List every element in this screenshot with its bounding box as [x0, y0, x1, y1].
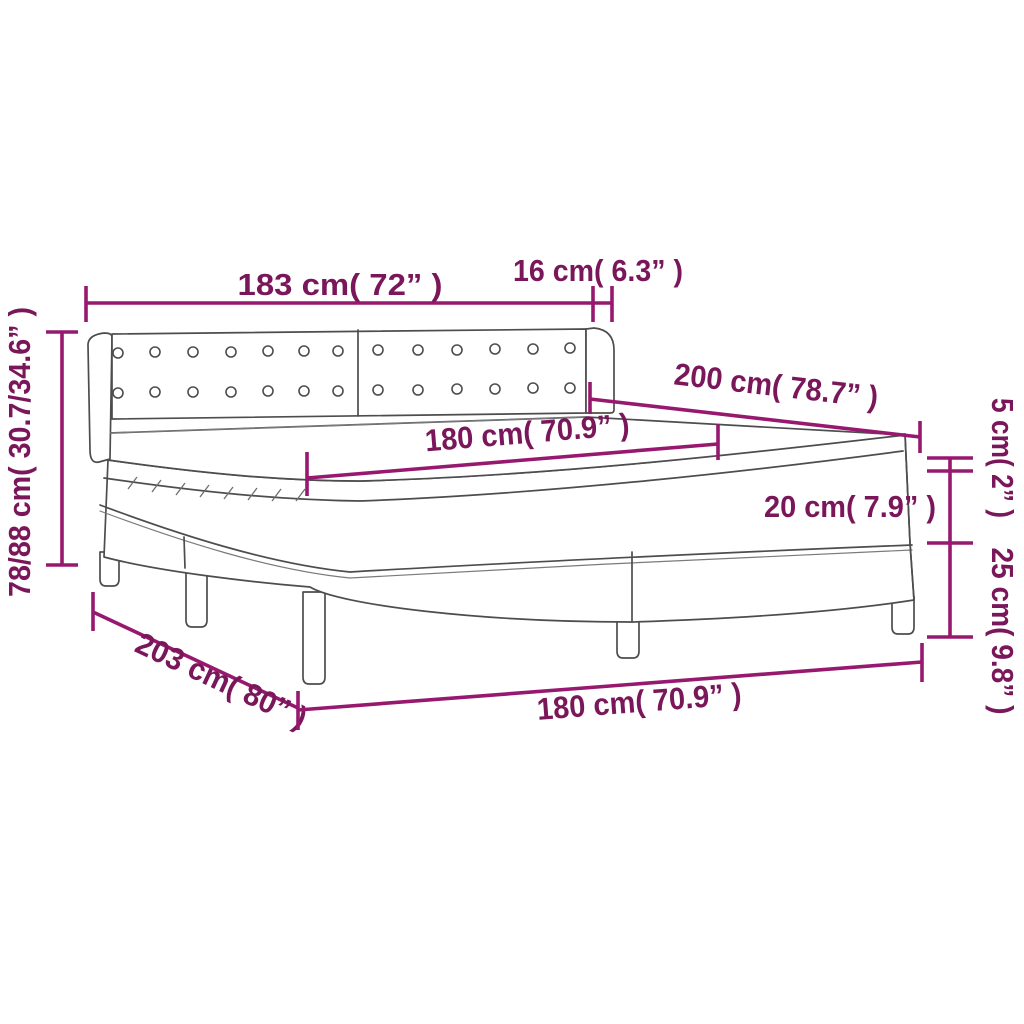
- dimension-label-bed-length: 200 cm( 78.7” ): [672, 356, 880, 414]
- button-icon: [150, 387, 160, 397]
- button-icon: [565, 343, 575, 353]
- button-icon: [490, 344, 500, 354]
- button-icon: [528, 344, 538, 354]
- dimension-label-headboard-width: 183 cm( 72” ): [238, 267, 443, 302]
- button-icon: [413, 345, 423, 355]
- button-icon: [263, 346, 273, 356]
- button-icon: [188, 387, 198, 397]
- button-icon: [113, 348, 123, 358]
- dim-headboard-wing-depth: 16 cm( 6.3” ): [513, 253, 683, 322]
- bed-leg: [303, 592, 325, 684]
- button-icon: [299, 386, 309, 396]
- dim-right-vertical: 5 cm( 2” ) 25 cm( 9.8” ): [927, 398, 1020, 715]
- button-icon: [299, 346, 309, 356]
- button-icon: [113, 388, 123, 398]
- button-icon: [226, 387, 236, 397]
- button-icon: [150, 347, 160, 357]
- headboard-panel: [112, 329, 586, 419]
- dimension-label-wing-depth: 16 cm( 6.3” ): [513, 253, 683, 288]
- button-icon: [333, 346, 343, 356]
- button-icon: [373, 345, 383, 355]
- dimension-label-topper-height: 5 cm( 2” ): [985, 398, 1020, 518]
- dimension-label-headboard-height: 78/88 cm( 30.7/34.6” ): [2, 307, 37, 597]
- dimension-label-base-width: 180 cm( 70.9” ): [536, 676, 743, 727]
- dim-base-width: 180 cm( 70.9” ): [298, 643, 922, 730]
- bed-dimension-diagram: 183 cm( 72” ) 16 cm( 6.3” ) 78/88 cm( 30…: [0, 0, 1024, 1024]
- headboard-left-wing: [88, 333, 112, 462]
- button-icon: [188, 347, 198, 357]
- dimension-label-mattress-height: 20 cm( 7.9” ): [764, 489, 936, 524]
- button-icon: [226, 347, 236, 357]
- button-icon: [528, 383, 538, 393]
- button-icon: [452, 345, 462, 355]
- bed-leg: [617, 618, 639, 658]
- bed-dimension-diagram-page: 183 cm( 72” ) 16 cm( 6.3” ) 78/88 cm( 30…: [0, 0, 1024, 1024]
- dimension-label-base-height: 25 cm( 9.8” ): [985, 548, 1020, 715]
- button-icon: [452, 384, 462, 394]
- dim-mattress-height: 20 cm( 7.9” ): [764, 489, 936, 524]
- button-icon: [263, 386, 273, 396]
- button-icon: [413, 385, 423, 395]
- dim-headboard-height: 78/88 cm( 30.7/34.6” ): [2, 307, 78, 597]
- button-icon: [373, 385, 383, 395]
- button-icon: [565, 383, 575, 393]
- button-icon: [490, 384, 500, 394]
- dimension-label-total-length: 203 cm( 80” ): [130, 626, 312, 736]
- button-icon: [333, 386, 343, 396]
- base-split-line-left: [184, 537, 185, 568]
